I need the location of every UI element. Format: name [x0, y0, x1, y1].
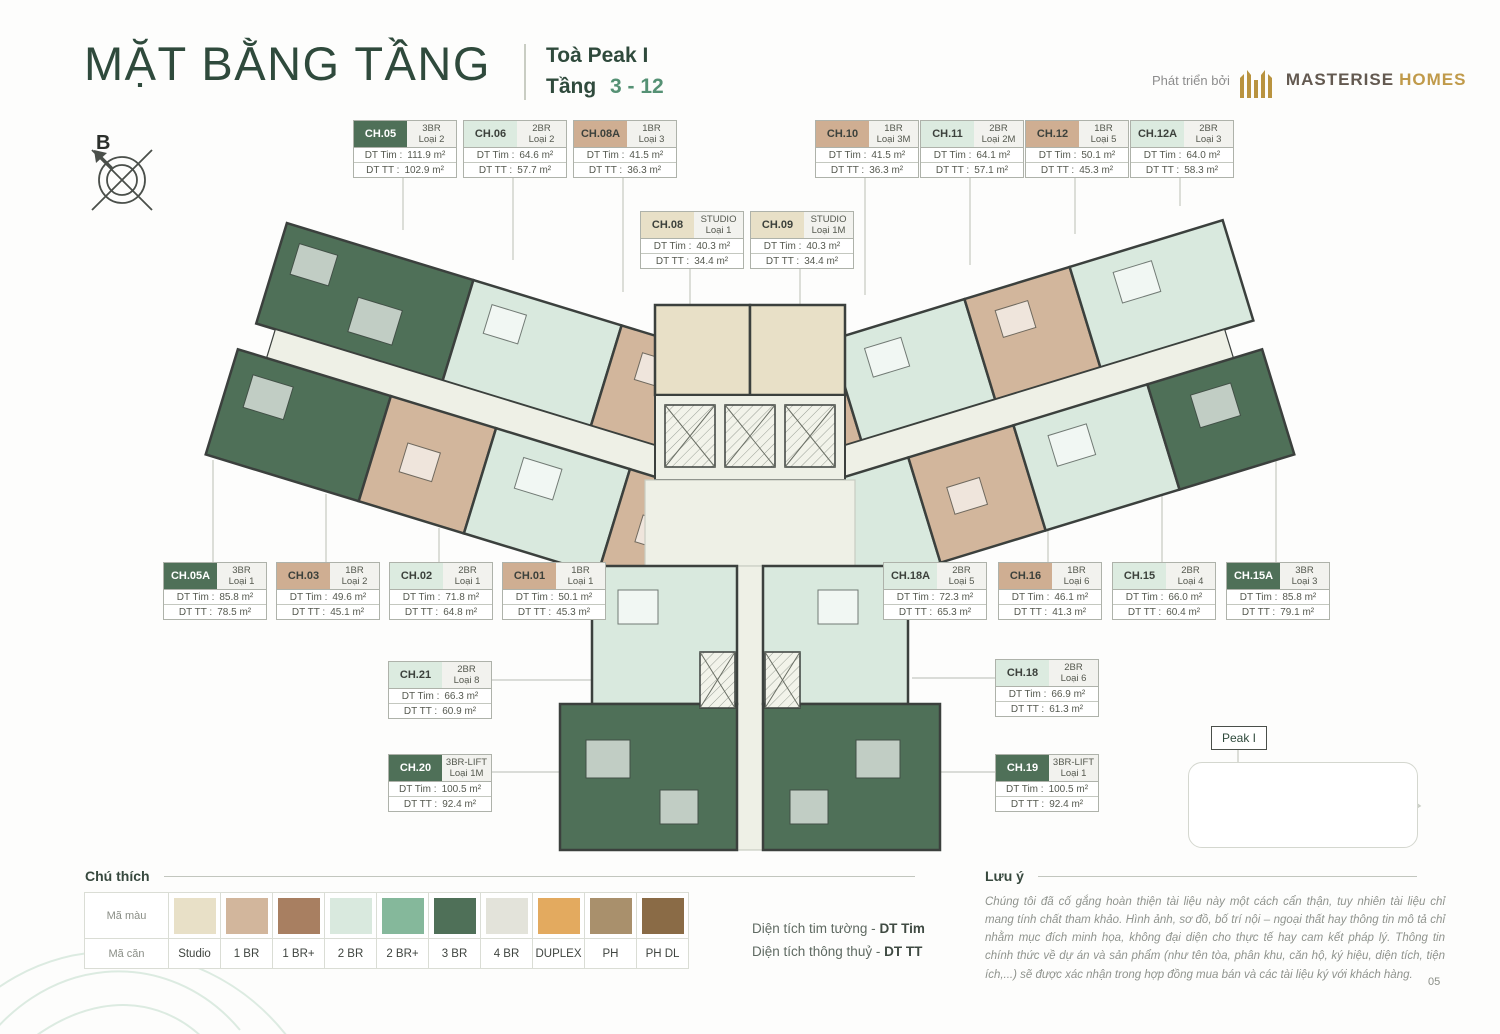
- unit-variant: Loại 6: [1061, 673, 1087, 684]
- dt-tt-value: 102.9 m²: [404, 165, 443, 176]
- unit-variant: Loại 3: [639, 134, 665, 145]
- legend-item-label: 1 BR+: [272, 938, 325, 969]
- unit-type: 1BR: [345, 565, 363, 576]
- dt-tim-label: DT Tim :: [177, 592, 215, 603]
- dt-tt-label: DT TT :: [1041, 165, 1074, 176]
- unit-id: CH.18: [996, 660, 1049, 686]
- dt-tim-value: 72.3 m²: [939, 592, 973, 603]
- dt-tim-label: DT Tim :: [897, 592, 935, 603]
- unit-variant: Loại 2: [529, 134, 555, 145]
- legend-swatch: [226, 898, 268, 934]
- dt-tim-label: DT Tim :: [1126, 592, 1164, 603]
- legend-item-label: 2 BR+: [376, 938, 429, 969]
- center-core: [645, 305, 855, 566]
- legend-item-label: 4 BR: [480, 938, 533, 969]
- dt-tim-value: 85.8 m²: [219, 592, 253, 603]
- unit-card: CH.21 2BRLoại 8 DT Tim :66.3 m² DT TT :6…: [388, 661, 492, 719]
- unit-id: CH.06: [464, 121, 517, 147]
- unit-variant: Loại 1: [1061, 768, 1087, 779]
- unit-variant: Loại 2: [342, 576, 368, 587]
- dt-tim-value: 50.1 m²: [558, 592, 592, 603]
- unit-card: CH.10 1BRLoại 3M DT Tim :41.5 m² DT TT :…: [815, 120, 919, 178]
- unit-id: CH.08A: [574, 121, 627, 147]
- dt-tt-label: DT TT :: [1014, 607, 1047, 618]
- unit-card: CH.15A 3BRLoại 3 DT Tim :85.8 m² DT TT :…: [1226, 562, 1330, 620]
- dt-tt-label: DT TT :: [518, 607, 551, 618]
- unit-id: CH.08: [641, 212, 694, 238]
- dt-tt-label: DT TT :: [404, 799, 437, 810]
- dt-tt-label: DT TT :: [589, 165, 622, 176]
- dt-tt-value: 58.3 m²: [1184, 165, 1218, 176]
- dt-tim-value: 66.3 m²: [444, 691, 478, 702]
- unit-type: 2BR: [952, 565, 970, 576]
- unit-card: CH.12 1BRLoại 5 DT Tim :50.1 m² DT TT :4…: [1025, 120, 1129, 178]
- dt-tt-label: DT TT :: [366, 165, 399, 176]
- unit-card: CH.15 2BRLoại 4 DT Tim :66.0 m² DT TT :6…: [1112, 562, 1216, 620]
- dt-tim-label: DT Tim :: [402, 691, 440, 702]
- unit-id: CH.01: [503, 563, 556, 589]
- dt-tt-label: DT TT :: [656, 256, 689, 267]
- unit-variant: Loại 1M: [450, 768, 484, 779]
- dt-tt-label: DT TT :: [292, 607, 325, 618]
- dt-tt-value: 60.4 m²: [1166, 607, 1200, 618]
- dt-tim-value: 40.3 m²: [806, 241, 840, 252]
- unit-type: STUDIO: [701, 214, 737, 225]
- unit-type: 3BR: [422, 123, 440, 134]
- dt-tt-value: 45.3 m²: [556, 607, 590, 618]
- legend-swatch: [486, 898, 528, 934]
- unit-id: CH.15A: [1227, 563, 1280, 589]
- keyplan-label: Peak I: [1211, 726, 1267, 750]
- unit-variant: Loại 3: [1196, 134, 1222, 145]
- legend-swatch: [642, 898, 684, 934]
- unit-type: 2BR: [532, 123, 550, 134]
- legend-swatch: [434, 898, 476, 934]
- unit-card: CH.20 3BR-LIFTLoại 1M DT Tim :100.5 m² D…: [388, 754, 492, 812]
- unit-card: CH.11 2BRLoại 2M DT Tim :64.1 m² DT TT :…: [920, 120, 1024, 178]
- unit-type: 3BR: [232, 565, 250, 576]
- unit-type: 2BR: [1181, 565, 1199, 576]
- dt-tt-label: DT TT :: [1128, 607, 1161, 618]
- dt-tim-label: DT Tim :: [1240, 592, 1278, 603]
- keyplan-box: [1188, 762, 1418, 848]
- legend-table: Mã màu Mã căn Studio 1 BR 1 BR+ 2 BR 2 B…: [85, 893, 689, 969]
- unit-id: CH.10: [816, 121, 869, 147]
- masterise-logo-icon: [1240, 70, 1272, 98]
- unit-card: CH.08 STUDIOLoại 1 DT Tim :40.3 m² DT TT…: [640, 211, 744, 269]
- unit-variant: Loại 4: [1178, 576, 1204, 587]
- unit-card: CH.18A 2BRLoại 5 DT Tim :72.3 m² DT TT :…: [883, 562, 987, 620]
- dt-tim-label: DT Tim :: [587, 150, 625, 161]
- legend-swatch-cell: [272, 892, 325, 939]
- dt-tt-label: DT TT :: [936, 165, 969, 176]
- unit-id: CH.12: [1026, 121, 1079, 147]
- dt-tim-label: DT Tim :: [290, 592, 328, 603]
- dt-tt-value: 92.4 m²: [1049, 799, 1083, 810]
- unit-card: CH.06 2BRLoại 2 DT Tim :64.6 m² DT TT :5…: [463, 120, 567, 178]
- unit-variant: Loại 1: [706, 225, 732, 236]
- dt-tt-value: 45.3 m²: [1079, 165, 1113, 176]
- dt-tt-value: 57.7 m²: [517, 165, 551, 176]
- dt-tim-value: 100.5 m²: [1049, 784, 1088, 795]
- dt-tim-label: DT Tim :: [365, 150, 403, 161]
- unit-card: CH.19 3BR-LIFTLoại 1 DT Tim :100.5 m² DT…: [995, 754, 1099, 812]
- dt-tt-value: 78.5 m²: [217, 607, 251, 618]
- dt-tim-value: 64.0 m²: [1186, 150, 1220, 161]
- dt-tt-value: 57.1 m²: [974, 165, 1008, 176]
- dt-tim-value: 46.1 m²: [1054, 592, 1088, 603]
- unit-id: CH.15: [1113, 563, 1166, 589]
- dt-tim-value: 64.6 m²: [519, 150, 553, 161]
- unit-type: STUDIO: [811, 214, 847, 225]
- dt-tt-value: 34.4 m²: [694, 256, 728, 267]
- dt-tt-value: 45.1 m²: [330, 607, 364, 618]
- dt-tt-value: 34.4 m²: [804, 256, 838, 267]
- legend-item-label: DUPLEX: [532, 938, 585, 969]
- dt-tt-value: 36.3 m²: [869, 165, 903, 176]
- dt-tt-label: DT TT :: [1146, 165, 1179, 176]
- dt-tim-label: DT Tim :: [1039, 150, 1077, 161]
- dt-tim-value: 71.8 m²: [445, 592, 479, 603]
- dt-tim-value: 66.0 m²: [1168, 592, 1202, 603]
- legend-swatch-cell: [324, 892, 377, 939]
- unit-type: 2BR: [458, 565, 476, 576]
- legend-swatch: [590, 898, 632, 934]
- dt-tim-value: 41.5 m²: [629, 150, 663, 161]
- dt-tt-value: 64.8 m²: [443, 607, 477, 618]
- unit-card: CH.05A 3BRLoại 1 DT Tim :85.8 m² DT TT :…: [163, 562, 267, 620]
- dt-tim-label: DT Tim :: [516, 592, 554, 603]
- legend-swatch: [174, 898, 216, 934]
- legend-item-label: 2 BR: [324, 938, 377, 969]
- unit-id: CH.03: [277, 563, 330, 589]
- dt-tim-value: 111.9 m²: [407, 150, 445, 161]
- dt-tt-label: DT TT :: [179, 607, 212, 618]
- legend-code-row-label: Mã căn: [84, 938, 169, 969]
- legend-swatch-cell: [584, 892, 637, 939]
- unit-id: CH.12A: [1131, 121, 1184, 147]
- unit-id: CH.05A: [164, 563, 217, 589]
- unit-id: CH.20: [389, 755, 442, 781]
- dt-tim-label: DT Tim :: [477, 150, 515, 161]
- unit-id: CH.05: [354, 121, 407, 147]
- unit-type: 1BR: [571, 565, 589, 576]
- unit-card: CH.12A 2BRLoại 3 DT Tim :64.0 m² DT TT :…: [1130, 120, 1234, 178]
- unit-type: 3BR-LIFT: [446, 757, 487, 768]
- dt-tim-value: 64.1 m²: [976, 150, 1010, 161]
- dt-tt-value: 41.3 m²: [1052, 607, 1086, 618]
- unit-variant: Loại 1: [455, 576, 481, 587]
- dt-tt-label: DT TT :: [405, 607, 438, 618]
- dt-tim-value: 85.8 m²: [1282, 592, 1316, 603]
- dt-tt-label: DT TT :: [479, 165, 512, 176]
- unit-variant: Loại 1: [229, 576, 255, 587]
- unit-type: 1BR: [884, 123, 902, 134]
- legend-color-row-label: Mã màu: [84, 892, 169, 939]
- unit-variant: Loại 2: [419, 134, 445, 145]
- dt-tim-label: DT Tim :: [934, 150, 972, 161]
- dt-tt-value: 92.4 m²: [442, 799, 476, 810]
- legend-swatch: [278, 898, 320, 934]
- dt-tt-value: 36.3 m²: [627, 165, 661, 176]
- dt-tt-value: 65.3 m²: [937, 607, 971, 618]
- dt-tim-value: 100.5 m²: [442, 784, 481, 795]
- dt-tt-label: DT TT :: [766, 256, 799, 267]
- dt-tim-value: 49.6 m²: [332, 592, 366, 603]
- dt-tt-value: 60.9 m²: [442, 706, 476, 717]
- dt-tim-value: 41.5 m²: [871, 150, 905, 161]
- legend-item-label: 1 BR: [220, 938, 273, 969]
- legend-item-label: PH DL: [636, 938, 689, 969]
- unit-card: CH.18 2BRLoại 6 DT Tim :66.9 m² DT TT :6…: [995, 659, 1099, 717]
- unit-card: CH.01 1BRLoại 1 DT Tim :50.1 m² DT TT :4…: [502, 562, 606, 620]
- unit-card: CH.09 STUDIOLoại 1M DT Tim :40.3 m² DT T…: [750, 211, 854, 269]
- unit-variant: Loại 3M: [877, 134, 911, 145]
- unit-variant: Loại 2M: [982, 134, 1016, 145]
- floor-plan-page: MẶT BẰNG TẦNG Toà Peak I Tầng 3 - 12 Phá…: [0, 0, 1500, 1034]
- dt-tim-label: DT Tim :: [1144, 150, 1182, 161]
- legend-swatch: [330, 898, 372, 934]
- dt-tim-label: DT Tim :: [403, 592, 441, 603]
- unit-type: 3BR-LIFT: [1053, 757, 1094, 768]
- unit-id: CH.16: [999, 563, 1052, 589]
- dt-tt-label: DT TT :: [1011, 704, 1044, 715]
- legend-swatch-cell: [428, 892, 481, 939]
- unit-variant: Loại 1M: [812, 225, 846, 236]
- dt-tt-label: DT TT :: [831, 165, 864, 176]
- unit-card: CH.16 1BRLoại 6 DT Tim :46.1 m² DT TT :4…: [998, 562, 1102, 620]
- dt-tim-label: DT Tim :: [654, 241, 692, 252]
- unit-type: 2BR: [1064, 662, 1082, 673]
- unit-type: 1BR: [642, 123, 660, 134]
- dt-tt-label: DT TT :: [1011, 799, 1044, 810]
- unit-card: CH.03 1BRLoại 2 DT Tim :49.6 m² DT TT :4…: [276, 562, 380, 620]
- unit-variant: Loại 5: [1091, 134, 1117, 145]
- unit-variant: Loại 1: [568, 576, 594, 587]
- unit-type: 2BR: [989, 123, 1007, 134]
- legend-swatch-cell: [480, 892, 533, 939]
- dt-tim-label: DT Tim :: [399, 784, 437, 795]
- unit-card: CH.05 3BRLoại 2 DT Tim :111.9 m² DT TT :…: [353, 120, 457, 178]
- unit-type: 2BR: [457, 664, 475, 675]
- floor-plan-drawing: [0, 0, 1500, 1034]
- dt-tim-value: 40.3 m²: [696, 241, 730, 252]
- unit-id: CH.18A: [884, 563, 937, 589]
- unit-id: CH.19: [996, 755, 1049, 781]
- unit-type: 3BR: [1295, 565, 1313, 576]
- legend-item-label: Studio: [168, 938, 221, 969]
- legend-swatch-cell: [220, 892, 273, 939]
- dt-tt-label: DT TT :: [1242, 607, 1275, 618]
- dt-tim-value: 50.1 m²: [1081, 150, 1115, 161]
- unit-id: CH.02: [390, 563, 443, 589]
- unit-id: CH.09: [751, 212, 804, 238]
- dt-tim-label: DT Tim :: [764, 241, 802, 252]
- unit-id: CH.11: [921, 121, 974, 147]
- legend-swatch-cell: [532, 892, 585, 939]
- dt-tt-label: DT TT :: [899, 607, 932, 618]
- unit-variant: Loại 5: [949, 576, 975, 587]
- unit-variant: Loại 8: [454, 675, 480, 686]
- legend-swatch-cell: [376, 892, 429, 939]
- legend-swatch-cell: [636, 892, 689, 939]
- legend-item-label: PH: [584, 938, 637, 969]
- dt-tt-value: 61.3 m²: [1049, 704, 1083, 715]
- unit-variant: Loại 3: [1292, 576, 1318, 587]
- dt-tim-label: DT Tim :: [1009, 689, 1047, 700]
- dt-tim-value: 66.9 m²: [1051, 689, 1085, 700]
- unit-type: 1BR: [1067, 565, 1085, 576]
- legend-swatch-cell: [168, 892, 221, 939]
- unit-card: CH.02 2BRLoại 1 DT Tim :71.8 m² DT TT :6…: [389, 562, 493, 620]
- unit-type: 2BR: [1199, 123, 1217, 134]
- compass-icon: [92, 150, 152, 210]
- unit-variant: Loại 6: [1064, 576, 1090, 587]
- dt-tt-label: DT TT :: [404, 706, 437, 717]
- dt-tim-label: DT Tim :: [1006, 784, 1044, 795]
- legend-item-label: 3 BR: [428, 938, 481, 969]
- unit-type: 1BR: [1094, 123, 1112, 134]
- unit-id: CH.21: [389, 662, 442, 688]
- dt-tt-value: 79.1 m²: [1280, 607, 1314, 618]
- legend-swatch: [538, 898, 580, 934]
- legend-swatch: [382, 898, 424, 934]
- dt-tim-label: DT Tim :: [829, 150, 867, 161]
- dt-tim-label: DT Tim :: [1012, 592, 1050, 603]
- unit-card: CH.08A 1BRLoại 3 DT Tim :41.5 m² DT TT :…: [573, 120, 677, 178]
